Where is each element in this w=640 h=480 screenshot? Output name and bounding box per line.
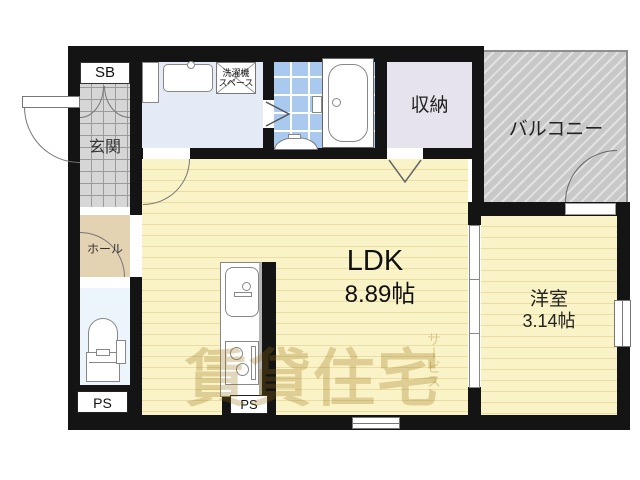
bathtub-drain-icon (332, 98, 341, 107)
window-glass-line (353, 423, 399, 424)
opening-storage (387, 148, 423, 159)
wall-balcony-left (472, 46, 484, 206)
sliding-door-panel (469, 333, 480, 388)
washer-label: 洗濯機 スペース (217, 68, 255, 89)
hall-label: ホール (78, 243, 132, 257)
kitchen-faucet-icon (242, 282, 251, 291)
wall-partition-top (468, 216, 481, 225)
entrance-door-arc (24, 107, 80, 163)
bathtub-faucet-panel (312, 96, 322, 113)
ldk-size-label: 8.89帖 (310, 281, 450, 309)
watermark-sub-text: サービス (424, 332, 444, 412)
wall-bath-storage (375, 46, 387, 159)
toilet-tank-icon (86, 352, 120, 382)
storage-door-v-icon (387, 159, 423, 185)
wall-partition-bottom (468, 387, 481, 415)
toilet-panel-icon (116, 340, 126, 364)
window-glass-line (622, 301, 623, 346)
opening-genkan-step (80, 207, 130, 215)
bathtub-icon (322, 58, 374, 148)
wall-corridor-right (130, 46, 142, 215)
bath-door-chevron-icon (265, 100, 291, 128)
kitchen-handle-icon (234, 292, 252, 297)
balcony-label: バルコニー (484, 119, 628, 141)
ldk-label: LDK (305, 245, 445, 278)
washer-space-box: 洗濯機 スペース (216, 62, 256, 94)
washroom-door-leaf (142, 62, 159, 103)
storage-label: 収納 (387, 95, 472, 117)
floor-plan: 洗濯機 スペース PS PS 賃貸住宅 サービス SB 玄関 ホール (0, 0, 640, 480)
western-room-label: 洋室 (481, 289, 617, 311)
sliding-door-panel (469, 225, 480, 280)
ps-box-left: PS (77, 391, 128, 413)
toilet-tank-line (89, 362, 117, 363)
watermark-text: 賃貸住宅 (185, 328, 441, 418)
western-room-size-label: 3.14帖 (481, 311, 617, 332)
shoe-box-label: SB (80, 64, 130, 81)
balcony-door-threshold (565, 203, 616, 215)
bath-step-handle (288, 134, 301, 139)
opening-washroom-door (143, 148, 190, 159)
ps-left-label: PS (78, 395, 127, 411)
opening-toilet-doorway (80, 277, 130, 288)
genkan-label: 玄関 (80, 139, 130, 157)
toilet-lid-icon (96, 349, 110, 356)
window-ldk-bottom (352, 417, 400, 429)
sink-faucet-icon (187, 61, 195, 69)
sliding-door-panel (469, 279, 480, 334)
